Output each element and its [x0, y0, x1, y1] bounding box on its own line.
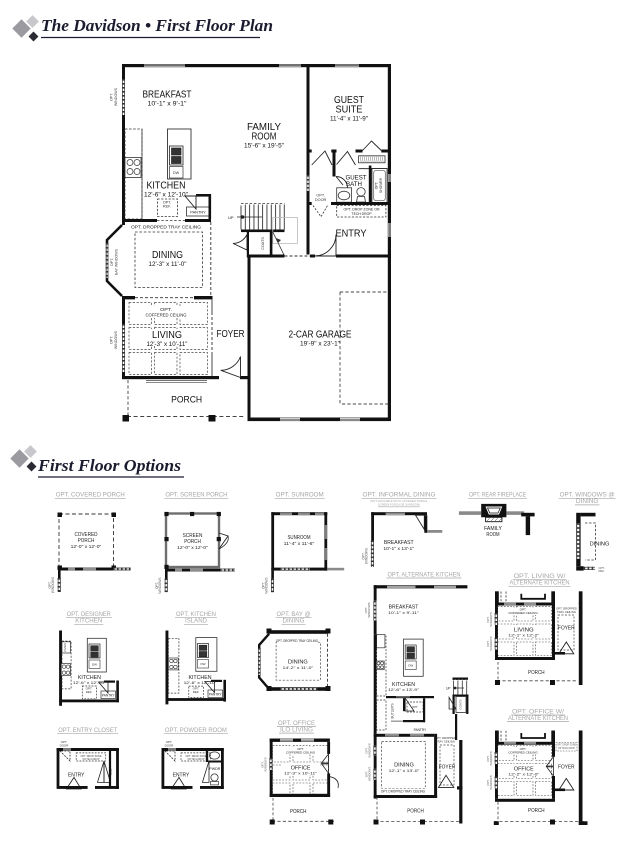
- svg-text:ENTRY: ENTRY: [68, 773, 85, 779]
- svg-text:ALTERNATE KITCHEN: ALTERNATE KITCHEN: [510, 581, 570, 587]
- svg-text:KITCHEN: KITCHEN: [147, 181, 186, 192]
- svg-text:ENTRY: ENTRY: [173, 773, 190, 779]
- svg-text:OPT. KITCHEN: OPT. KITCHEN: [176, 612, 216, 618]
- svg-text:12'-3" x 10'-11": 12'-3" x 10'-11": [284, 772, 318, 776]
- svg-text:SCREEN PORCH OR SUNROOM): SCREEN PORCH OR SUNROOM): [378, 503, 420, 507]
- svg-text:LIVING: LIVING: [152, 330, 182, 341]
- svg-text:WINDOWS: WINDOWS: [114, 330, 118, 349]
- svg-text:12'-0" x 12'-0": 12'-0" x 12'-0": [71, 544, 102, 549]
- svg-text:WINDOWS: WINDOWS: [367, 767, 371, 781]
- svg-text:COFFERED CEILING: COFFERED CEILING: [146, 313, 188, 318]
- svg-text:FOYER: FOYER: [439, 765, 456, 771]
- svg-text:OPT.: OPT.: [160, 307, 172, 312]
- svg-text:12'-1" x 13'-0": 12'-1" x 13'-0": [389, 768, 420, 773]
- svg-text:BATH: BATH: [346, 181, 362, 188]
- svg-text:DW: DW: [173, 171, 180, 175]
- svg-text:OPT. POWDER ROOM: OPT. POWDER ROOM: [165, 728, 227, 734]
- svg-text:12'-0" x 12'-0": 12'-0" x 12'-0": [177, 545, 208, 550]
- svg-text:PORCH: PORCH: [290, 809, 307, 815]
- svg-text:FOYER: FOYER: [558, 626, 575, 632]
- svg-text:OPT. DROP ZONE: OPT. DROP ZONE: [557, 743, 576, 747]
- svg-text:WINDOWS: WINDOWS: [489, 775, 493, 789]
- svg-text:12'-6" x 13'-9": 12'-6" x 13'-9": [388, 687, 419, 692]
- svg-text:OPT. WINDOWS @: OPT. WINDOWS @: [560, 493, 615, 499]
- svg-text:UP: UP: [228, 215, 234, 220]
- svg-text:TRAY CEILING: TRAY CEILING: [557, 610, 576, 614]
- svg-text:OPT.: OPT.: [375, 182, 379, 190]
- svg-text:WINDOWS: WINDOWS: [365, 548, 369, 564]
- svg-text:KITCHEN: KITCHEN: [75, 619, 102, 625]
- svg-text:PANTRY: PANTRY: [102, 693, 116, 697]
- svg-text:The Davidson • First Floor Pla: The Davidson • First Floor Plan: [41, 16, 273, 35]
- svg-text:COFFERED CEILING: COFFERED CEILING: [286, 751, 316, 755]
- svg-text:OPT. OFFICE: OPT. OFFICE: [278, 721, 315, 727]
- svg-text:REF.: REF.: [598, 569, 604, 573]
- svg-text:REF.: REF.: [193, 690, 200, 694]
- svg-text:WINDOWS: WINDOWS: [263, 757, 267, 771]
- svg-text:WINDOWS: WINDOWS: [367, 602, 371, 617]
- svg-text:OPT. SCREEN PORCH: OPT. SCREEN PORCH: [165, 493, 227, 499]
- svg-text:OPT.: OPT.: [110, 336, 114, 344]
- svg-text:OPT. ENTRY CLOSET: OPT. ENTRY CLOSET: [58, 728, 117, 734]
- svg-text:DOOR: DOOR: [315, 198, 327, 202]
- svg-text:DINING: DINING: [576, 499, 599, 505]
- svg-text:10'-1" x 9'-1": 10'-1" x 9'-1": [148, 101, 187, 108]
- svg-text:PANTRY: PANTRY: [190, 210, 206, 215]
- svg-text:WINDOWS: WINDOWS: [489, 751, 493, 765]
- svg-text:COATS: COATS: [261, 237, 265, 250]
- svg-text:OPT. DESIGNER: OPT. DESIGNER: [67, 612, 112, 618]
- svg-text:OPT. LIVING W/: OPT. LIVING W/: [514, 574, 566, 580]
- svg-text:WINDOWS: WINDOWS: [367, 743, 371, 757]
- svg-text:WINDOWS: WINDOWS: [265, 577, 269, 593]
- svg-text:OPT. COVERED PORCH: OPT. COVERED PORCH: [56, 493, 125, 499]
- svg-text:DINING: DINING: [590, 542, 610, 548]
- svg-text:DINING: DINING: [152, 250, 183, 261]
- svg-text:14'-2" x 11'-0": 14'-2" x 11'-0": [283, 665, 314, 670]
- svg-text:REF.: REF.: [163, 205, 171, 209]
- svg-text:WINDOWS: WINDOWS: [489, 612, 493, 626]
- svg-text:OVEN: OVEN: [63, 643, 67, 652]
- svg-text:First Floor Options: First Floor Options: [37, 456, 181, 475]
- svg-text:TRAY CEILING: TRAY CEILING: [436, 739, 455, 743]
- svg-text:ALTERNATE KITCHEN: ALTERNATE KITCHEN: [508, 716, 568, 722]
- svg-text:OPT. DROPPED TRAY CEILING: OPT. DROPPED TRAY CEILING: [381, 790, 425, 794]
- svg-text:COATS: COATS: [459, 699, 463, 709]
- svg-text:OPT. REAR FIREPLACE: OPT. REAR FIREPLACE: [469, 493, 526, 499]
- svg-text:DW: DW: [92, 663, 97, 667]
- svg-text:WINDOWS: WINDOWS: [114, 87, 118, 106]
- svg-text:SUITE: SUITE: [336, 105, 363, 116]
- svg-text:COFFERED CEILING: COFFERED CEILING: [508, 751, 538, 755]
- svg-text:SHOWER: SHOWER: [379, 177, 383, 193]
- svg-text:OPT. OFFICE W/: OPT. OFFICE W/: [512, 709, 564, 715]
- svg-text:19'-9" x 23'-1": 19'-9" x 23'-1": [300, 341, 340, 348]
- svg-text:PANTRY: PANTRY: [414, 728, 428, 732]
- svg-text:DW: DW: [201, 662, 206, 666]
- svg-text:OR TECH DROP: OR TECH DROP: [83, 757, 100, 761]
- svg-text:WINDOWS: WINDOWS: [489, 636, 493, 650]
- svg-text:12'-2" x 12'-0": 12'-2" x 12'-0": [508, 773, 540, 777]
- svg-text:COFFERED CEILING: COFFERED CEILING: [508, 611, 538, 615]
- svg-text:PORCH: PORCH: [528, 670, 545, 676]
- svg-text:FOYER: FOYER: [558, 765, 575, 771]
- svg-text:BREAKFAST: BREAKFAST: [143, 90, 192, 101]
- svg-text:FOYER: FOYER: [217, 329, 245, 340]
- svg-text:ROOM: ROOM: [486, 532, 500, 538]
- svg-text:PORCH: PORCH: [528, 808, 545, 814]
- svg-text:12'-3" x 10'-11": 12'-3" x 10'-11": [147, 341, 188, 348]
- svg-text:CLO.: CLO.: [109, 768, 113, 775]
- svg-text:OPT. DROP ZONE OR: OPT. DROP ZONE OR: [344, 208, 380, 212]
- svg-text:ENTRY: ENTRY: [336, 229, 367, 240]
- svg-text:OPT. SUNROOM: OPT. SUNROOM: [276, 493, 324, 499]
- svg-text:PWDR: PWDR: [209, 767, 220, 771]
- svg-text:BUTLER'S: BUTLER'S: [391, 703, 395, 718]
- svg-text:OPT.: OPT.: [316, 194, 324, 198]
- svg-text:PANTRY: PANTRY: [209, 692, 223, 696]
- svg-text:11'-4" x 11'-6": 11'-4" x 11'-6": [284, 541, 315, 546]
- svg-text:OPT. INFORMAL DINING: OPT. INFORMAL DINING: [363, 493, 436, 499]
- svg-text:DINING: DINING: [283, 619, 305, 625]
- svg-text:OPT.: OPT.: [110, 93, 114, 101]
- svg-text:2-CAR GARAGE: 2-CAR GARAGE: [289, 330, 352, 341]
- svg-text:15'-6" x 19'-5": 15'-6" x 19'-5": [244, 143, 284, 150]
- svg-text:11'-4" x 11'-9": 11'-4" x 11'-9": [330, 116, 368, 123]
- svg-text:OR TECH DROP: OR TECH DROP: [188, 757, 205, 761]
- svg-text:BAY WINDOWS: BAY WINDOWS: [115, 248, 119, 275]
- svg-text:TECH DROP: TECH DROP: [352, 212, 372, 216]
- svg-text:OPT. DROPPED TRAY CEILING: OPT. DROPPED TRAY CEILING: [276, 639, 318, 643]
- svg-text:12'-6" x 12'-10": 12'-6" x 12'-10": [73, 680, 107, 685]
- svg-text:12'-3" x 11'-0": 12'-3" x 11'-0": [149, 261, 187, 268]
- svg-text:OPT.: OPT.: [412, 705, 418, 709]
- svg-text:OPT. DROPPED TRAY CEILING: OPT. DROPPED TRAY CEILING: [131, 225, 202, 230]
- svg-text:DOOR: DOOR: [60, 744, 69, 748]
- svg-text:REF.: REF.: [86, 690, 93, 694]
- svg-text:OR TECH DROP: OR TECH DROP: [558, 746, 575, 750]
- svg-text:DW: DW: [408, 664, 413, 668]
- svg-text:ROOM: ROOM: [252, 132, 277, 143]
- svg-text:DOOR: DOOR: [165, 744, 174, 748]
- svg-text:WINDOWS: WINDOWS: [51, 577, 55, 593]
- svg-text:ISLAND: ISLAND: [185, 619, 208, 625]
- svg-text:PORCH: PORCH: [171, 395, 202, 406]
- svg-text:ILO LIVING: ILO LIVING: [280, 727, 313, 733]
- svg-text:12'-1" x 12'-2": 12'-1" x 12'-2": [508, 634, 540, 638]
- svg-text:10'-1" x 9'-11": 10'-1" x 9'-11": [388, 610, 419, 615]
- svg-text:OPT. BAY @: OPT. BAY @: [277, 612, 311, 618]
- svg-text:WINDOWS: WINDOWS: [158, 577, 162, 593]
- svg-text:PORCH: PORCH: [407, 809, 424, 815]
- svg-text:12'-6" x 12'-10": 12'-6" x 12'-10": [144, 192, 188, 199]
- svg-text:OPT. ALTERNATE KITCHEN: OPT. ALTERNATE KITCHEN: [388, 572, 461, 578]
- svg-text:10'-1" x 13'-1": 10'-1" x 13'-1": [383, 546, 414, 551]
- svg-text:UP: UP: [446, 687, 450, 691]
- svg-text:OPT.: OPT.: [110, 258, 114, 266]
